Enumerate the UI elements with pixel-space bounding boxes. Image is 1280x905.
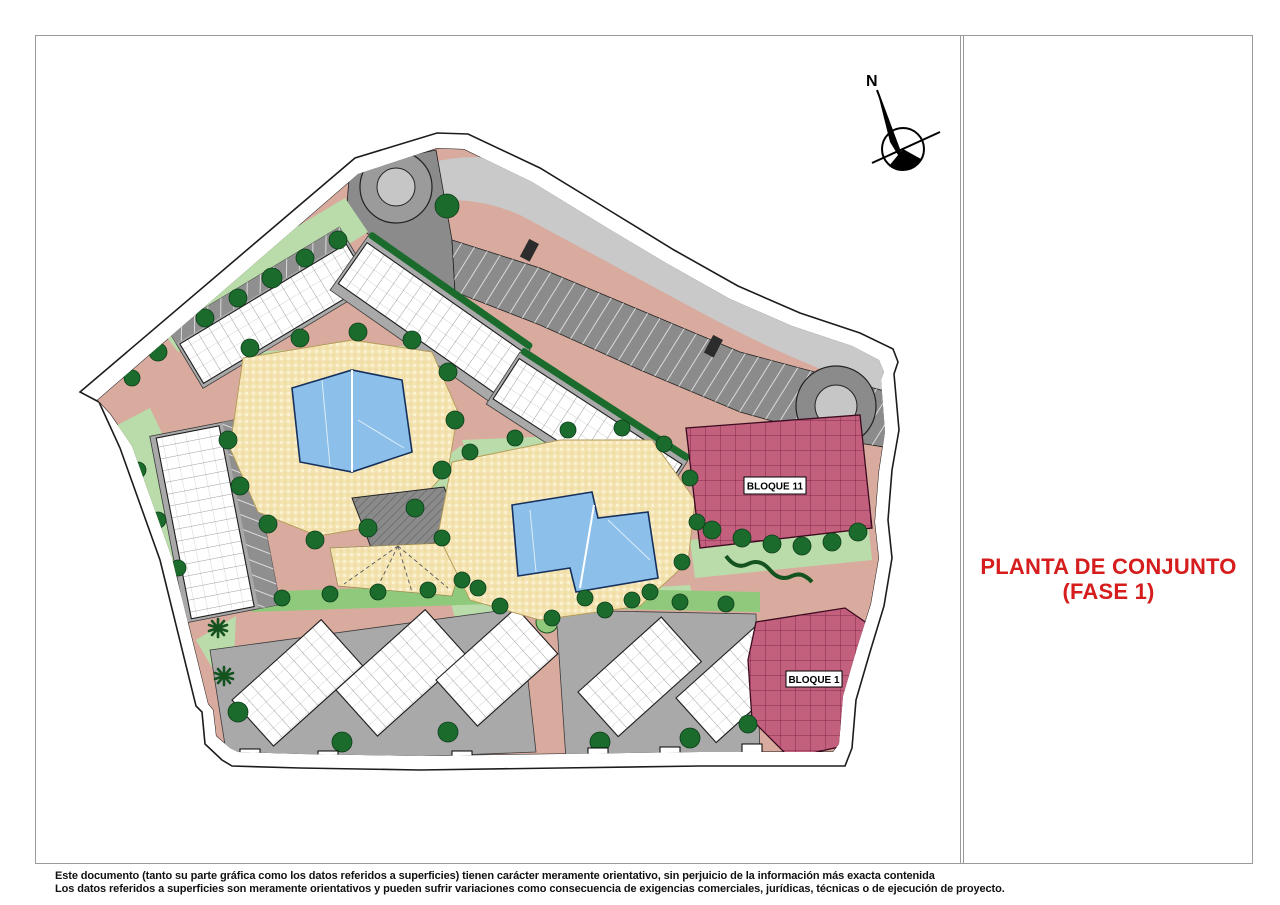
drawing-sheet: BLOQUE 11 BLOQUE 1 N PLANTA DE CONJUNTO … xyxy=(0,0,1280,905)
disclaimer-line2: Los datos referidos a superficies son me… xyxy=(55,883,1245,896)
disclaimer-line1: Este documento (tanto su parte gráfica c… xyxy=(55,870,1245,883)
title-panel-divider xyxy=(960,35,964,864)
page-title-line2: (FASE 1) xyxy=(964,579,1253,604)
sheet-frame xyxy=(35,35,1253,864)
page-title-line1: PLANTA DE CONJUNTO xyxy=(964,554,1253,579)
title-panel: PLANTA DE CONJUNTO (FASE 1) xyxy=(964,554,1253,604)
disclaimer: Este documento (tanto su parte gráfica c… xyxy=(55,870,1245,895)
